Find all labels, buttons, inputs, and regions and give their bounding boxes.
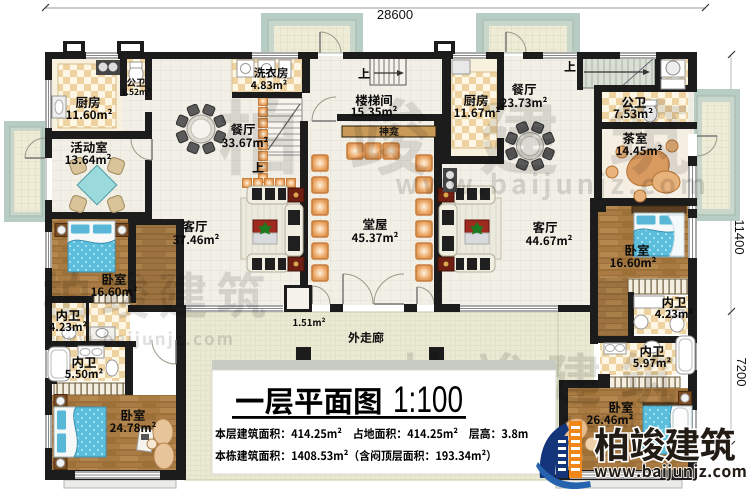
svg-text:1:100: 1:100: [393, 379, 463, 420]
svg-text:28600: 28600: [377, 7, 413, 22]
svg-text:7200: 7200: [734, 358, 749, 387]
svg-text:11400: 11400: [732, 219, 747, 254]
